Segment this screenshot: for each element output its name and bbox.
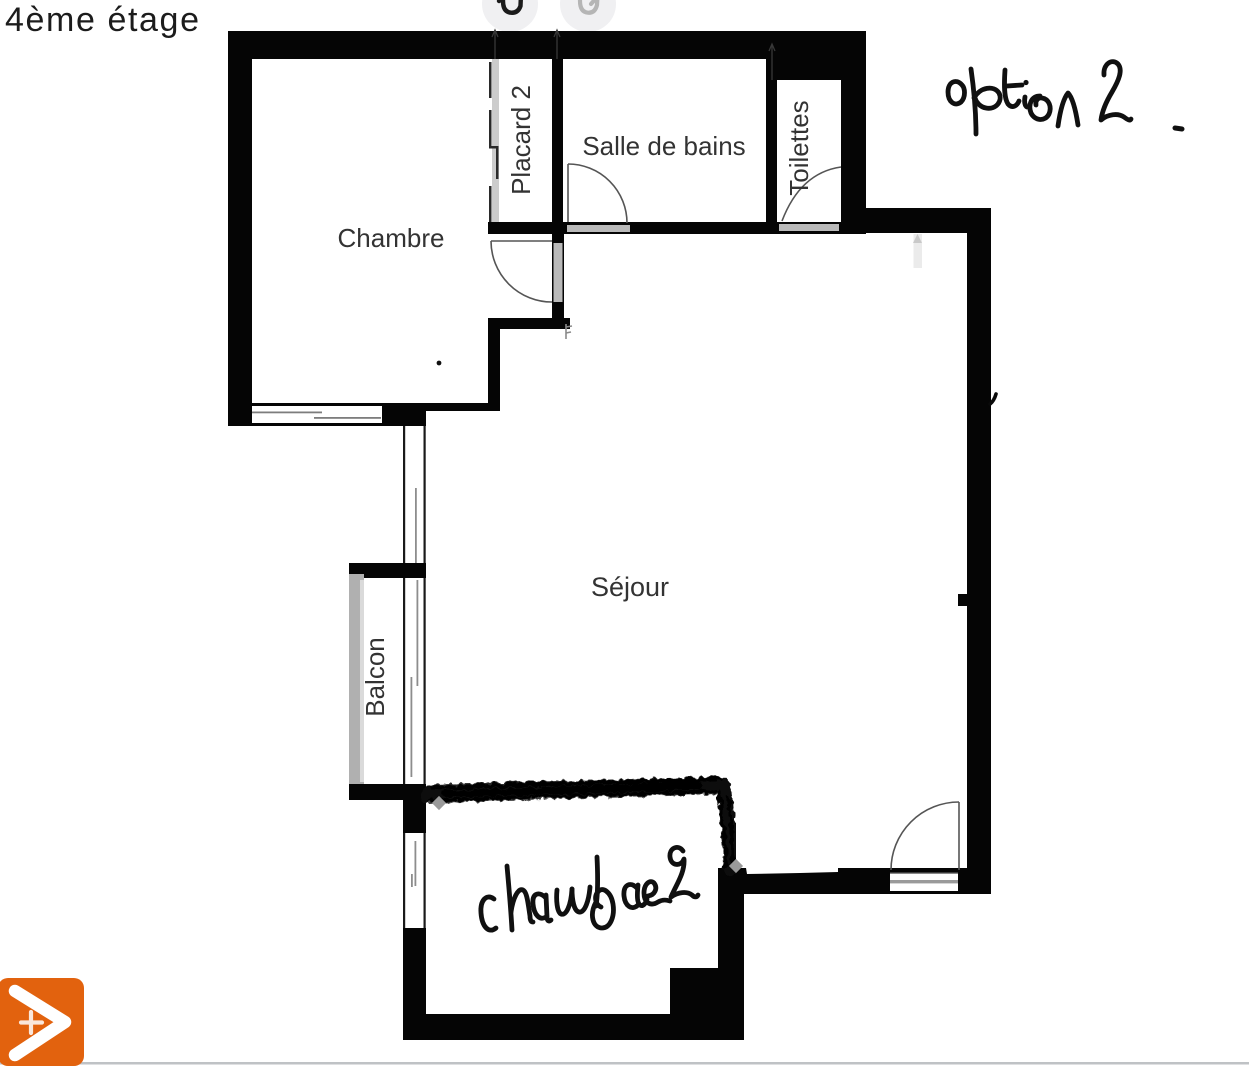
svg-text:Séjour: Séjour bbox=[591, 572, 669, 602]
svg-text:Toilettes: Toilettes bbox=[784, 100, 814, 195]
svg-text:Placard 2: Placard 2 bbox=[506, 85, 536, 195]
svg-text:Balcon: Balcon bbox=[360, 637, 390, 717]
svg-text:Chambre: Chambre bbox=[338, 223, 445, 253]
svg-text:Salle de bains: Salle de bains bbox=[582, 131, 745, 161]
svg-text:4ème étage: 4ème étage bbox=[5, 1, 201, 39]
